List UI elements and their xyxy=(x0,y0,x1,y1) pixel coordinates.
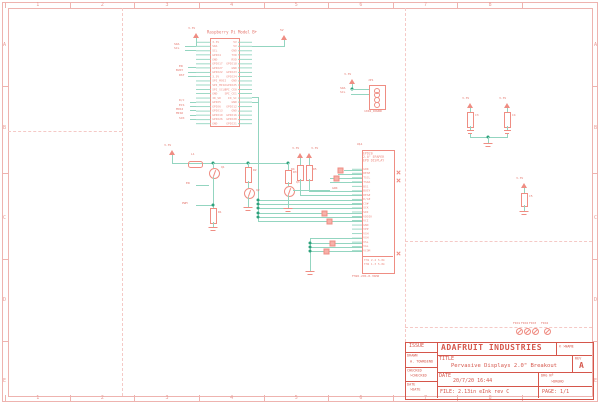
fiducial-mark xyxy=(516,328,523,335)
pin-name: 5V xyxy=(233,41,236,44)
epd-name: EPD202.0" EPAPEREPD DISPLAY xyxy=(363,152,448,163)
rpi-header-title: Raspberry Pi Model B+ xyxy=(207,31,257,35)
wire xyxy=(300,179,301,195)
pin-name: VPP xyxy=(363,228,368,231)
component-ref: Q2 xyxy=(256,189,260,192)
pin-name: GPIO25 xyxy=(226,84,236,87)
no-connect-icon xyxy=(396,170,401,175)
pin-stub xyxy=(352,221,362,222)
component-ref: R5 xyxy=(313,168,317,171)
component-ref: C3 xyxy=(475,114,479,117)
wire xyxy=(248,197,249,207)
junction-dot xyxy=(309,250,312,253)
pin-stub xyxy=(238,59,252,60)
pin-stub xyxy=(238,111,252,112)
net-label: MOSI xyxy=(176,108,183,111)
transistor-symbol xyxy=(209,168,220,179)
pin-stub xyxy=(238,81,252,82)
wire xyxy=(330,182,362,183)
junction-dot xyxy=(257,202,260,205)
pin-stub xyxy=(352,216,362,217)
transistor-symbol xyxy=(244,188,255,199)
wire xyxy=(258,221,362,222)
pin-stub xyxy=(238,124,252,125)
net-label: MISO xyxy=(176,112,183,115)
wire xyxy=(185,46,196,47)
supply-label: 3.3V xyxy=(344,73,351,76)
component-ref: Q1 xyxy=(221,166,225,169)
transistor-symbol xyxy=(284,186,295,197)
pin-stub xyxy=(352,199,362,200)
pin-stub xyxy=(352,186,362,187)
frame-tick xyxy=(592,173,597,174)
wire xyxy=(310,251,362,252)
date-value: 20/7/20 16:44 xyxy=(453,379,492,384)
epd-section-divider xyxy=(362,256,393,257)
frame-row-letter: E xyxy=(3,379,6,384)
pin-name: VGL xyxy=(363,245,368,248)
pin-stub xyxy=(352,208,362,209)
pin-name: VCOM xyxy=(363,250,370,253)
frame-column-number: 6 xyxy=(329,395,394,401)
pin-name: VSL xyxy=(363,241,368,244)
component-ref: FID1 xyxy=(513,322,520,325)
gnd-symbol xyxy=(209,227,218,231)
checked-label: CHECKED xyxy=(407,369,422,372)
net-label: EN xyxy=(186,182,190,185)
pin-name: SPI_CE0 xyxy=(225,88,237,91)
jumper-pad xyxy=(324,249,330,255)
pin-stub xyxy=(352,225,362,226)
pin-name: RXD xyxy=(232,58,237,61)
fiducial-mark xyxy=(544,328,551,335)
gnd-symbol xyxy=(520,211,529,215)
wire xyxy=(288,195,289,208)
frame-row-letter: C xyxy=(3,216,6,221)
pin-name: TXD xyxy=(232,54,237,57)
jumper-pad xyxy=(327,219,333,225)
wire xyxy=(258,204,362,205)
component-ref: FID2 xyxy=(521,322,528,325)
frame-column-number: 5 xyxy=(265,2,330,8)
pin-stub xyxy=(238,55,252,56)
pin-name: GND xyxy=(232,80,237,83)
pin-name: VGH xyxy=(363,237,368,240)
pin-stub xyxy=(238,72,252,73)
file-value: FILE: 2.13in eInk rev C xyxy=(440,390,509,395)
epd-bottom-row: TH2 1.3 5.0k xyxy=(364,262,441,266)
gnd-symbol xyxy=(306,271,315,275)
frame-row-letter: E xyxy=(594,379,597,384)
pin-name: GDR xyxy=(363,168,368,171)
frame-column-number: 1 xyxy=(6,2,71,8)
frame-tick xyxy=(592,86,597,87)
frame-tick xyxy=(2,341,8,342)
pin-name: VSH xyxy=(363,233,368,236)
wire xyxy=(196,205,213,206)
inductor-symbol xyxy=(188,161,203,168)
pin-name: GND xyxy=(232,49,237,52)
pin-name: BS1 xyxy=(363,185,368,188)
pin-name: SPI_CE1 xyxy=(225,92,237,95)
title-block-line xyxy=(572,355,573,372)
wire xyxy=(252,46,285,47)
supply-label: 5V xyxy=(280,29,284,32)
checked-value: >CHECKED xyxy=(410,374,427,377)
date-side-value: >DATE xyxy=(410,388,420,391)
pin-stub xyxy=(238,42,252,43)
date-label: DATE xyxy=(439,374,451,379)
title-block-line xyxy=(538,372,539,398)
wire xyxy=(258,200,362,201)
component-ref: FID3 xyxy=(529,322,536,325)
drg-label: DRG Nº xyxy=(541,374,554,377)
junction-dot xyxy=(212,204,215,207)
component-ref: R2 xyxy=(253,169,257,172)
net-label: ECS xyxy=(179,104,184,107)
frame-row-letter: B xyxy=(594,126,597,131)
wire xyxy=(188,67,196,68)
frame-row-letter: A xyxy=(3,43,6,48)
jp1-pin xyxy=(374,102,380,108)
title-block-line xyxy=(556,342,557,355)
frame-section-divider xyxy=(405,241,592,242)
frame-column-number: 4 xyxy=(200,395,265,401)
frame-column-number: 8 xyxy=(458,2,523,8)
frame-inner-border xyxy=(8,8,593,397)
pin-stub xyxy=(238,50,252,51)
pin-name: TSDA xyxy=(363,181,370,184)
pin-stub xyxy=(238,89,252,90)
pin-name: 5V xyxy=(233,45,236,48)
pin-stub xyxy=(352,195,362,196)
component-ref: U$1 xyxy=(357,143,362,146)
gnd-symbol xyxy=(244,207,253,211)
supply-label: 3.3V xyxy=(462,97,469,100)
component-ref: L1 xyxy=(191,153,195,156)
component-ref: FID4 xyxy=(541,322,548,325)
drawn-label: DRAWN xyxy=(407,354,417,357)
supply-label: 3.3V xyxy=(164,144,171,147)
junction-dot xyxy=(257,198,260,201)
frame-tick xyxy=(2,173,8,174)
supply-label: 3.3V xyxy=(516,177,523,180)
drg-value: >DRGNO xyxy=(551,380,564,383)
wire xyxy=(310,247,362,248)
rev-label: REV xyxy=(575,357,581,360)
pin-stub xyxy=(238,102,252,103)
net-label: D/C xyxy=(179,99,184,102)
pin-row: GPIO21 xyxy=(176,122,253,126)
frame-row-letter: D xyxy=(594,298,597,303)
schematic-sheet: { "colors":{"component_red":"#ef8d83","n… xyxy=(0,0,600,404)
pin-stub xyxy=(352,212,362,213)
component-ref: R4 xyxy=(291,168,295,171)
frame-section-divider xyxy=(405,327,592,328)
frame-column-number: 3 xyxy=(135,2,200,8)
wire xyxy=(190,106,196,107)
frame-row-letter: B xyxy=(3,126,6,131)
pin-stub xyxy=(238,119,252,120)
pin-stub xyxy=(352,234,362,235)
pin-stub xyxy=(352,191,362,192)
pin-name: VDDIO xyxy=(363,215,372,218)
cap-plate xyxy=(467,130,474,131)
component-ref: C5 xyxy=(529,195,533,198)
pin-stub xyxy=(238,46,252,47)
net-label: PWM xyxy=(182,202,187,205)
wire xyxy=(288,163,289,170)
supply-label: 3.3V xyxy=(311,147,318,150)
wire xyxy=(310,238,362,239)
drawn-value: A. TOWNSEND xyxy=(410,360,433,363)
pin-name: GPIO20 xyxy=(226,118,236,121)
frame-column-number: 2 xyxy=(71,2,136,8)
rpi-right-pins: 5V5VGNDTXDRXDGPIO18GNDGPIO23GPIO24GNDGPI… xyxy=(176,40,253,126)
jumper-pad xyxy=(338,167,344,173)
copyright: © >NAME xyxy=(559,345,574,348)
jumper-pad xyxy=(330,240,336,246)
wire xyxy=(300,158,301,165)
pin-name: GPIO12 xyxy=(226,105,236,108)
no-connect-icon xyxy=(396,178,401,183)
title-block-line xyxy=(437,355,592,356)
part-label: FH26-29S-0.3SHW xyxy=(352,275,379,278)
frame-section-divider xyxy=(122,8,123,396)
supply-label: 3.3V xyxy=(292,147,299,150)
frame-column-band-top: 12345678 xyxy=(5,2,523,8)
supply-label: 3.3V xyxy=(499,97,506,100)
pin-name: CS# xyxy=(363,202,368,205)
wire xyxy=(248,181,249,188)
company-name: ADAFRUIT INDUSTRIES xyxy=(441,344,542,352)
page-value: PAGE: 1/1 xyxy=(542,390,569,395)
frame-tick xyxy=(2,86,8,87)
frame-tick xyxy=(592,259,597,260)
frame-column-number: 7 xyxy=(394,2,459,8)
fiducial-mark xyxy=(524,328,531,335)
wire xyxy=(258,208,362,209)
cap-plate xyxy=(504,130,511,131)
title-block-line xyxy=(437,342,438,398)
pin-name: GPIO24 xyxy=(226,75,236,78)
issue-label: ISSUE xyxy=(409,344,424,349)
wire xyxy=(258,217,362,218)
pin-name: GPIO23 xyxy=(226,71,236,74)
net-label: SCL xyxy=(340,91,345,94)
frame-row-letter: C xyxy=(594,216,597,221)
sheet-title: Pervasive Displays 2.0" Breakout xyxy=(451,364,557,370)
wire xyxy=(185,50,196,51)
frame-column-number: 1 xyxy=(6,395,71,401)
pin-name: GND xyxy=(232,67,237,70)
net-label: EN xyxy=(179,65,183,68)
wire xyxy=(309,158,310,165)
net-label: GDR xyxy=(332,187,337,190)
net-label: SCL xyxy=(174,47,179,50)
title-block-line xyxy=(437,386,592,387)
pin-name: BUSY xyxy=(363,190,370,193)
pin-name: GPIO18 xyxy=(226,62,236,65)
epd-pins: GDRRESETSCLTSDABS1BUSYRES#D/C#CS#SCKSDIV… xyxy=(352,167,429,253)
date-side-label: DATE xyxy=(407,383,415,386)
frame-column-number: 4 xyxy=(200,2,265,8)
frame-column-number: 3 xyxy=(135,395,200,401)
wire xyxy=(188,72,196,73)
wire xyxy=(258,213,362,214)
wire xyxy=(310,243,362,244)
wire xyxy=(190,110,196,111)
pin-stub xyxy=(238,106,252,107)
wire xyxy=(338,174,362,175)
component-ref: C4 xyxy=(512,114,516,117)
epd-name-line: EPD DISPLAY xyxy=(363,159,448,163)
no-connect-icon xyxy=(396,251,401,256)
pin-name: VCI xyxy=(363,220,368,223)
wire xyxy=(351,89,369,90)
pin-name: RESE xyxy=(363,172,370,175)
pin-name: GND xyxy=(232,110,237,113)
component-ref: R1 xyxy=(218,211,222,214)
pin-stub xyxy=(238,93,252,94)
pin-name: ID_SC xyxy=(228,97,237,100)
junction-dot xyxy=(309,241,312,244)
jumper-pad xyxy=(322,210,328,216)
pin-stub xyxy=(238,98,252,99)
junction-dot xyxy=(257,215,260,218)
frame-row-letter: D xyxy=(3,298,6,303)
net-label: BUSY xyxy=(176,69,183,72)
fiducial-mark xyxy=(532,328,539,335)
pin-name: SDI xyxy=(363,211,368,214)
rev-value: A xyxy=(579,362,584,370)
wire xyxy=(196,38,197,46)
gnd-symbol xyxy=(484,143,493,147)
jumper-pad xyxy=(334,176,340,182)
frame-tick xyxy=(2,259,8,260)
gnd-symbol xyxy=(284,208,293,212)
pin-name: D/C# xyxy=(363,198,370,201)
junction-dot xyxy=(309,245,312,248)
part-label: 1X04_ROUND xyxy=(364,110,382,113)
junction-dot xyxy=(257,211,260,214)
wire xyxy=(344,170,362,171)
wire xyxy=(196,185,209,186)
wire xyxy=(188,76,196,77)
pin-stub xyxy=(352,203,362,204)
wire xyxy=(351,94,369,95)
junction-dot xyxy=(257,207,260,210)
pin-stub xyxy=(238,85,252,86)
pin-name: GPIO16 xyxy=(226,114,236,117)
frame-column-number: 2 xyxy=(71,395,136,401)
wire xyxy=(190,119,196,120)
frame-column-number: 6 xyxy=(329,2,394,8)
pin-stub xyxy=(238,76,252,77)
wire xyxy=(309,179,310,191)
wire xyxy=(190,115,196,116)
net-label: RST xyxy=(179,74,184,77)
frame-column-number: 5 xyxy=(265,395,330,401)
pin-stub xyxy=(238,115,252,116)
net-label: SCK xyxy=(179,117,184,120)
supply-label: 3.3V xyxy=(188,27,195,30)
pin-name: GND xyxy=(232,101,237,104)
pin-name: GPIO21 xyxy=(226,123,236,126)
wire xyxy=(190,102,196,103)
frame-row-letter: A xyxy=(594,43,597,48)
epd-bottom-rows: TH1 2.4 5.0kTH2 1.3 5.0k xyxy=(364,258,441,267)
pin-name: TSCL xyxy=(363,177,370,180)
pin-name: SCK xyxy=(363,207,368,210)
title-label: TITLE xyxy=(439,357,454,362)
pin-stub xyxy=(238,68,252,69)
pin-name: GND xyxy=(363,224,368,227)
title-block-line xyxy=(437,372,592,373)
net-label: SDA xyxy=(340,87,345,90)
pin-name: RES# xyxy=(363,194,370,197)
pin-row: VCOM xyxy=(352,249,429,253)
pin-stub xyxy=(352,229,362,230)
wire xyxy=(172,155,173,163)
frame-section-divider xyxy=(8,131,122,132)
pin-stub xyxy=(238,63,252,64)
component-ref: JP1 xyxy=(368,79,373,82)
